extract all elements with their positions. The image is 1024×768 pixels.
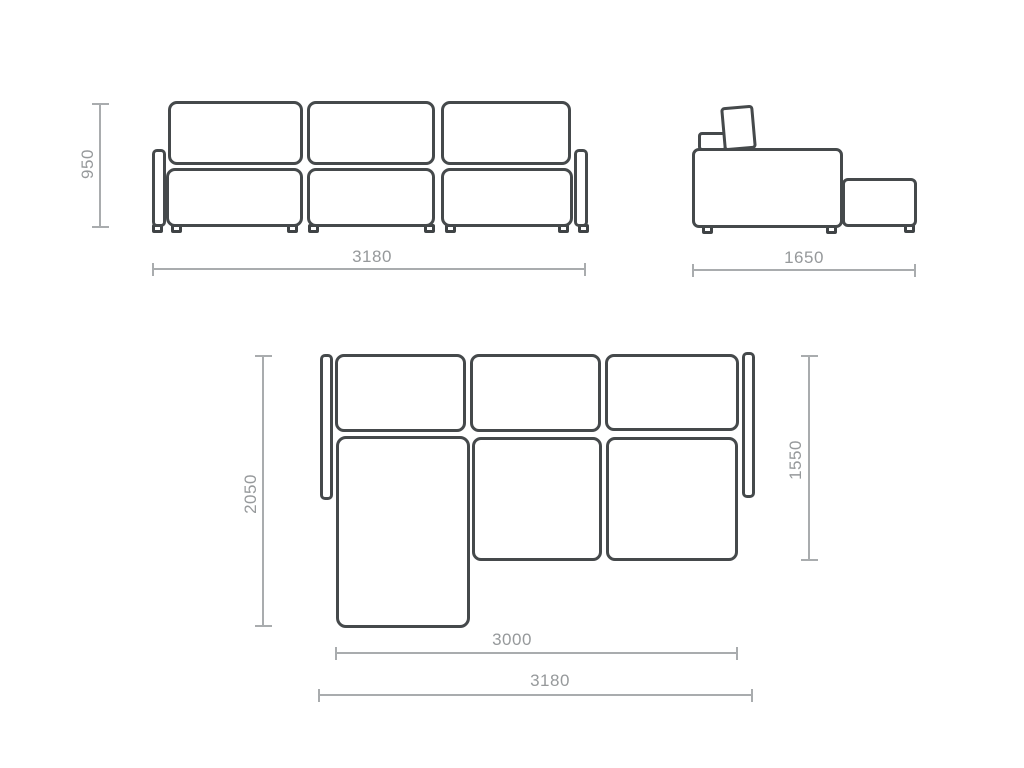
top-back-cushion-1: [335, 354, 466, 432]
side-back-cushion: [720, 105, 757, 152]
top-overall-width-dimension-label: 3180: [530, 671, 570, 691]
front-width-dimension-line: [152, 268, 586, 270]
front-back-cushion-3: [441, 101, 571, 165]
front-back-cushion-2: [307, 101, 435, 165]
top-seat-2: [472, 437, 602, 561]
top-armrest-left: [320, 354, 333, 500]
top-overall-width-dimension-line: [318, 694, 753, 696]
front-armrest-right: [574, 149, 588, 227]
front-height-dimension-line: [99, 103, 101, 228]
top-depth-chaise-dimension-label: 2050: [241, 474, 261, 514]
side-main-body: [692, 148, 843, 228]
top-back-cushion-3: [605, 354, 739, 431]
top-depth-dimension-label: 1550: [786, 440, 806, 480]
side-ottoman-extension: [842, 178, 917, 227]
front-seat-2: [307, 168, 435, 227]
front-width-dimension-label: 3180: [352, 247, 392, 267]
top-seat-width-dimension-label: 3000: [492, 630, 532, 650]
top-back-cushion-2: [470, 354, 601, 432]
top-depth-chaise-dimension-line: [262, 355, 264, 627]
front-seat-1: [166, 168, 303, 227]
front-seat-3: [441, 168, 573, 227]
top-armrest-right: [742, 352, 755, 498]
front-back-cushion-1: [168, 101, 303, 165]
side-depth-dimension-label: 1650: [784, 248, 824, 268]
front-height-dimension-label: 950: [78, 149, 98, 179]
front-armrest-left: [152, 149, 166, 227]
top-seat-width-dimension-line: [335, 652, 738, 654]
top-chaise-section: [336, 436, 470, 628]
top-seat-3: [606, 437, 738, 561]
top-depth-dimension-line: [808, 355, 810, 561]
sofa-dimension-drawing: 950 3180 1650 2050: [0, 0, 1024, 768]
side-depth-dimension-line: [692, 269, 916, 271]
